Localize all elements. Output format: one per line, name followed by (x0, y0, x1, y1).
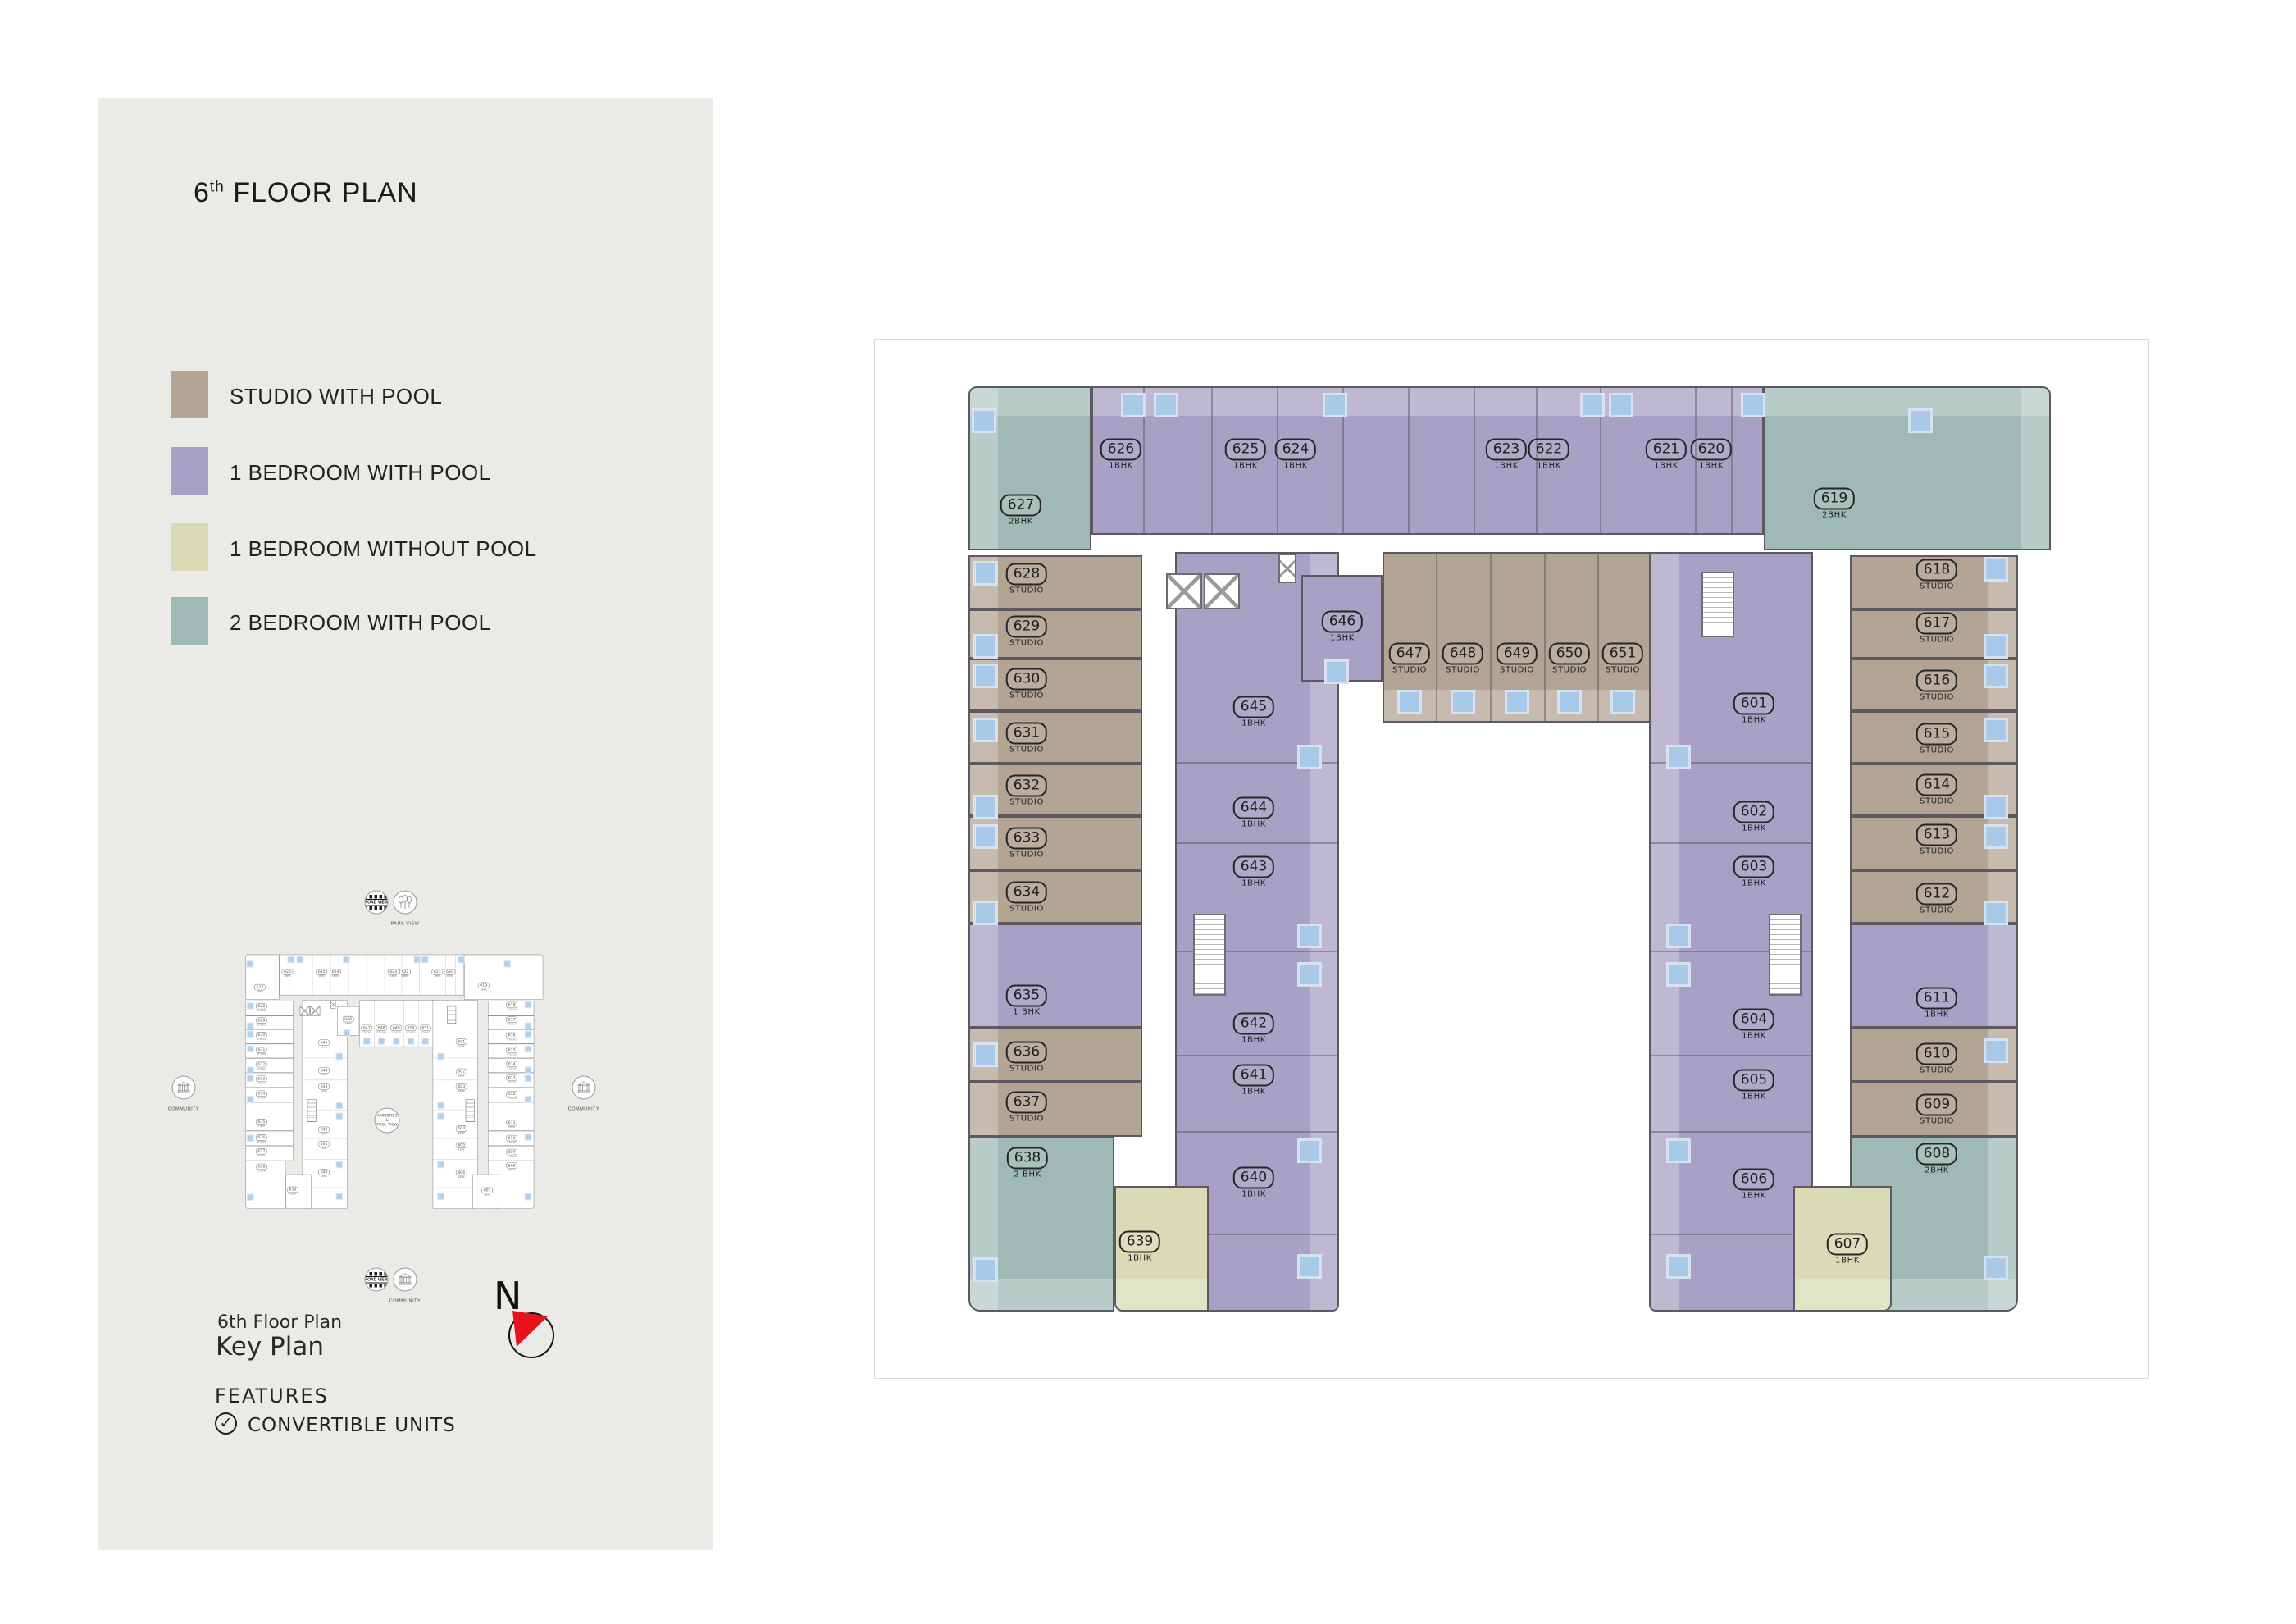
unit-number: 602 (1733, 801, 1774, 823)
unit-number: 615 (1916, 723, 1957, 746)
unit-label-648: 648STUDIO (376, 1025, 387, 1034)
pool-window-square (1984, 795, 2008, 819)
unit-label-628: 628STUDIO (256, 1003, 267, 1012)
unit-label-627: 6272BHK (254, 984, 266, 993)
unit-type: 2BHK (254, 991, 266, 993)
unit-type: STUDIO (256, 1082, 267, 1084)
pool-window-square (504, 960, 511, 967)
wall-separator (367, 955, 367, 996)
unit-number: 638 (1007, 1147, 1048, 1170)
pool-window-square (1297, 745, 1322, 769)
pool-window-square (297, 956, 303, 963)
unit-type: 1BHK (1486, 462, 1527, 471)
unit-label-644: 6441BHK (1233, 797, 1274, 829)
wall-separator (403, 1000, 404, 1047)
pool-window-square (336, 1113, 343, 1120)
pool-window-square (973, 824, 998, 849)
unit-number: 613 (1916, 824, 1957, 846)
balcony-strip (970, 1083, 998, 1135)
wall-separator (1175, 842, 1339, 844)
unit-label-618: 618STUDIO (506, 1002, 517, 1011)
unit-number: 626 (1100, 439, 1141, 461)
elevator (330, 1001, 335, 1009)
pool-window-square (1397, 690, 1422, 714)
unit-label-629: 629STUDIO (1006, 616, 1047, 648)
page-title: 6th FLOOR PLAN (194, 177, 418, 209)
unit-number: 647 (1389, 643, 1430, 665)
unit-type: 1BHK (1733, 824, 1774, 833)
unit-type: 1BHK (388, 975, 399, 978)
unit-label-608: 6082BHK (1916, 1143, 1957, 1175)
unit-type: 1BHK (318, 1133, 330, 1135)
pool-window-square (1666, 1138, 1691, 1163)
unit-type: STUDIO (376, 1031, 387, 1033)
unit-type: 1BHK (1225, 462, 1266, 471)
unit-type: STUDIO (506, 1053, 517, 1056)
unit-label-607: 6071BHK (481, 1188, 493, 1197)
unit-type: STUDIO (1006, 851, 1047, 860)
unit-label-607: 6071BHK (1827, 1234, 1868, 1266)
unit-637 (968, 1082, 1142, 1137)
pool-window-square (972, 408, 996, 433)
unit-number: 614 (1916, 774, 1957, 796)
pool-window-square (1984, 1038, 2008, 1063)
unit-type: 1BHK (316, 975, 327, 978)
stairs (307, 1100, 317, 1123)
community-icon (394, 1268, 417, 1292)
unit-label-632: 632STUDIO (1006, 775, 1047, 807)
unit-label-606: 6061BHK (456, 1170, 467, 1179)
unit-label-643: 6431BHK (1233, 856, 1274, 888)
unit-number: 615 (506, 1047, 517, 1053)
road-view-icon: ROAD VIEW (365, 1268, 389, 1292)
balcony-strip (1988, 1083, 2016, 1135)
unit-label-642: 6421BHK (1233, 1013, 1274, 1045)
unit-number: 601 (1733, 693, 1774, 715)
unit-type: 1BHK (1233, 1036, 1274, 1045)
unit-635 (245, 1102, 293, 1131)
unit-number: 646 (343, 1016, 354, 1022)
pool-window-square (1666, 924, 1691, 948)
unit-label-619: 6192BHK (478, 983, 490, 992)
unit-number: 617 (506, 1016, 517, 1022)
balcony-strip (1988, 1138, 2016, 1310)
unit-number: 637 (1006, 1092, 1047, 1114)
wall-separator (1436, 552, 1437, 723)
pool-window-square (1580, 393, 1605, 417)
pool-window-square (1666, 745, 1691, 769)
unit-number: 601 (456, 1038, 467, 1044)
unit-label-613: 613STUDIO (506, 1074, 517, 1083)
unit-label-612: 612STUDIO (1916, 883, 1957, 915)
unit-type: STUDIO (506, 1142, 517, 1144)
unit-type: STUDIO (1916, 797, 1957, 806)
unit-number: 651 (1602, 643, 1643, 665)
unit-number: 606 (456, 1170, 467, 1175)
unit-type: STUDIO (1006, 905, 1047, 914)
unit-type: 1BHK (456, 1176, 467, 1179)
unit-label-605: 6051BHK (456, 1143, 467, 1152)
wall-separator (433, 1080, 478, 1081)
unit-label-634: 634STUDIO (256, 1091, 267, 1100)
unit-type: 2BHK (1916, 1166, 1957, 1175)
unit-label-640: 6401BHK (318, 1169, 330, 1178)
unit-type: 1BHK (1646, 462, 1687, 471)
unit-number: 625 (1225, 439, 1266, 461)
unit-number: 608 (1916, 1143, 1957, 1166)
pool-window-square (973, 1257, 998, 1282)
wall-separator (1490, 552, 1492, 723)
unit-number: 604 (456, 1125, 467, 1131)
unit-label-604: 6041BHK (1733, 1009, 1774, 1041)
unit-number: 622 (1528, 439, 1569, 461)
pool-window-square (1323, 393, 1347, 417)
unit-number: 610 (506, 1135, 517, 1141)
legend-swatch-1br-nopool (171, 523, 208, 571)
unit-type: 1BHK (282, 975, 294, 978)
unit-type: 1BHK (318, 1046, 330, 1048)
unit-label-620: 6201BHK (1691, 439, 1732, 471)
unit-type: STUDIO (1916, 906, 1957, 915)
unit-type: 1BHK (506, 1126, 517, 1129)
pool-window-square (247, 1075, 253, 1082)
unit-type: 1BHK (343, 1023, 354, 1025)
unit-type: STUDIO (1442, 666, 1483, 675)
unit-type: 1BHK (318, 1090, 330, 1093)
unit-label-634: 634STUDIO (1006, 882, 1047, 914)
unit-type: STUDIO (1006, 586, 1047, 595)
unit-label-610: 610STUDIO (506, 1135, 517, 1144)
unit-number: 623 (1486, 439, 1527, 461)
pool-window-square (247, 1096, 253, 1102)
unit-type: 1BHK (456, 1090, 467, 1093)
unit-label-633: 633STUDIO (1006, 828, 1047, 860)
pool-window-square (1505, 690, 1529, 714)
unit-type: 1BHK (456, 1148, 467, 1151)
unit-label-626: 6261BHK (282, 969, 294, 978)
wall-separator (1175, 1131, 1339, 1133)
unit-type: 1BHK (1275, 462, 1316, 471)
unit-type: STUDIO (1916, 746, 1957, 755)
unit-number: 648 (1442, 643, 1483, 665)
pool-window-square (1297, 962, 1322, 987)
pool-window-square (421, 956, 428, 963)
key-plan-miniature: 6011BHK6021BHK6031BHK6041BHK6051BHK6061B… (220, 942, 571, 1228)
unit-number: 618 (506, 1002, 517, 1008)
unit-number: 647 (361, 1025, 372, 1031)
unit-label-639: 6391BHK (287, 1187, 298, 1196)
unit-label-609: 609STUDIO (1916, 1094, 1957, 1126)
unit-number: 616 (1916, 670, 1957, 692)
pool-window-square (525, 1046, 531, 1052)
pool-window-square (1984, 901, 2008, 925)
floor-plan-drawing: 6011BHK6021BHK6031BHK6041BHK6051BHK6061B… (220, 942, 570, 1227)
unit-label-649: 649STUDIO (1496, 643, 1537, 675)
unit-type: 1BHK (456, 1045, 467, 1047)
unit-label-640: 6401BHK (1233, 1167, 1274, 1199)
unit-type: 1BHK (1100, 462, 1141, 471)
unit-number: 643 (1233, 856, 1274, 878)
pool-window-square (393, 1038, 399, 1044)
unit-label-628: 628STUDIO (1006, 563, 1047, 595)
unit-number: 635 (1006, 985, 1047, 1007)
pool-window-square (336, 1102, 343, 1109)
unit-type: STUDIO (1916, 847, 1957, 856)
balcony-strip (1795, 1279, 1890, 1310)
unit-label-621: 6211BHK (431, 969, 443, 978)
unit-type: 2BHK (478, 988, 490, 991)
unit-type: STUDIO (1006, 691, 1047, 700)
unit-number: 624 (330, 969, 341, 974)
unit-637 (245, 1146, 293, 1161)
pool-window-square (973, 561, 998, 586)
amenities-pool-view-label: AMENITIES & POOL VIEW (375, 1108, 400, 1134)
unit-type: STUDIO (256, 1053, 267, 1056)
unit-type: STUDIO (506, 1081, 517, 1083)
unit-label-625: 6251BHK (1225, 439, 1266, 471)
pool-window-square (1297, 924, 1322, 948)
unit-type: STUDIO (506, 1097, 517, 1100)
unit-label-638: 6382 BHK (1007, 1147, 1048, 1179)
unit-label-623: 6231BHK (1486, 439, 1527, 471)
wall-separator (303, 1138, 348, 1139)
legend-label: 1 BEDROOM WITH POOL (230, 460, 491, 486)
unit-number: 602 (456, 1069, 467, 1074)
wall-separator (433, 1159, 478, 1160)
unit-number: 629 (1006, 616, 1047, 638)
unit-type: 1BHK (399, 975, 411, 978)
unit-number: 633 (1006, 828, 1047, 850)
unit-label-646: 6461BHK (343, 1016, 354, 1025)
unit-label-637: 637STUDIO (256, 1148, 267, 1157)
pool-window-square (422, 1038, 429, 1044)
elevator (300, 1006, 310, 1015)
unit-type: 1BHK (1733, 1093, 1774, 1102)
unit-number: 636 (256, 1134, 267, 1140)
unit-type: 1BHK (330, 975, 341, 978)
unit-label-617: 617STUDIO (506, 1016, 517, 1025)
unit-number: 613 (506, 1074, 517, 1080)
unit-number: 640 (1233, 1167, 1274, 1189)
pool-window-square (1908, 408, 1933, 433)
pool-window-square (1610, 690, 1635, 714)
unit-number: 611 (506, 1120, 517, 1125)
unit-type: STUDIO (420, 1031, 431, 1033)
unit-label-638: 6382 BHK (256, 1164, 267, 1173)
unit-number: 618 (1916, 559, 1957, 582)
unit-number: 630 (1006, 668, 1047, 691)
unit-number: 638 (256, 1164, 267, 1170)
balcony-strip (1765, 388, 2049, 416)
unit-type: STUDIO (1916, 1117, 1957, 1126)
balcony-strip (1093, 388, 1762, 416)
unit-619 (1764, 386, 2051, 550)
unit-number: 606 (1733, 1169, 1774, 1191)
unit-type: STUDIO (1006, 746, 1047, 755)
unit-label-643: 6431BHK (318, 1083, 330, 1093)
unit-label-619: 6192BHK (1814, 488, 1855, 520)
unit-number: 650 (1549, 643, 1590, 665)
park-view-icon (394, 891, 417, 915)
unit-type: 1BHK (318, 1147, 330, 1150)
park-view-caption: PARK VIEW (391, 921, 420, 926)
unit-label-630: 630STUDIO (1006, 668, 1047, 700)
unit-type: 1BHK (1119, 1254, 1160, 1263)
pool-window-square (247, 1194, 253, 1201)
unit-number: 637 (256, 1148, 267, 1154)
unit-type: 1BHK (1733, 1032, 1774, 1041)
unit-label-633: 633STUDIO (256, 1075, 267, 1084)
pool-window-square (525, 1023, 531, 1029)
unit-label-627: 6272BHK (1000, 495, 1041, 527)
unit-number: 609 (1916, 1094, 1957, 1116)
pool-window-square (437, 1193, 444, 1200)
wall-separator (1649, 1234, 1813, 1235)
unit-type: STUDIO (405, 1031, 417, 1033)
unit-635 (968, 924, 1142, 1028)
unit-type: STUDIO (1496, 666, 1537, 675)
pool-window-square (525, 1075, 531, 1082)
unit-type: STUDIO (506, 1038, 517, 1041)
legend-swatch-2br-pool (171, 597, 208, 645)
pool-window-square (437, 1102, 444, 1109)
unit-label-603: 6031BHK (1733, 856, 1774, 888)
stairs (1193, 914, 1226, 996)
unit-number: 642 (1233, 1013, 1274, 1035)
wall-separator (418, 1000, 419, 1047)
unit-number: 644 (318, 1067, 330, 1073)
unit-type: STUDIO (506, 1067, 517, 1070)
pool-window-square (525, 1067, 531, 1074)
pool-window-square (973, 634, 998, 659)
unit-number: 648 (376, 1025, 387, 1031)
unit-label-631: 631STUDIO (256, 1047, 267, 1056)
elevator (1166, 573, 1202, 609)
legend-label: 2 BEDROOM WITH POOL (230, 610, 491, 636)
unit-label-614: 614STUDIO (1916, 774, 1957, 806)
unit-number: 624 (1275, 439, 1316, 461)
unit-type: STUDIO (506, 1008, 517, 1010)
unit-type: 1 BHK (256, 1125, 267, 1128)
pool-window-square (437, 1113, 444, 1120)
unit-label-618: 618STUDIO (1916, 559, 1957, 591)
pool-window-square (344, 1029, 350, 1036)
unit-number: 619 (478, 983, 490, 988)
unit-number: 642 (318, 1127, 330, 1133)
unit-type: 1BHK (1233, 879, 1274, 888)
unit-label-626: 6261BHK (1100, 439, 1141, 471)
unit-number: 605 (1733, 1070, 1774, 1092)
unit-type: STUDIO (1916, 582, 1957, 591)
unit-label-639: 6391BHK (1119, 1231, 1160, 1263)
pool-window-square (1984, 824, 2008, 849)
pool-window-square (1984, 1256, 2008, 1280)
check-icon: ✓ (215, 1412, 237, 1435)
pool-window-square (973, 795, 998, 819)
unit-number: 632 (256, 1061, 267, 1067)
unit-number: 621 (431, 969, 443, 974)
unit-label-637: 637STUDIO (1006, 1092, 1047, 1124)
unit-label-623: 6231BHK (388, 969, 399, 978)
unit-label-635: 6351 BHK (1006, 985, 1047, 1017)
unit-number: 612 (506, 1091, 517, 1097)
unit-type: 1BHK (1233, 719, 1274, 728)
wall-separator (374, 1000, 375, 1047)
unit-type: 1BHK (444, 975, 456, 978)
elevator (310, 1006, 320, 1015)
unit-type: STUDIO (256, 1038, 267, 1041)
unit-type: 2 BHK (256, 1170, 267, 1172)
unit-type: STUDIO (1006, 798, 1047, 807)
unit-number: 641 (1233, 1065, 1274, 1087)
unit-type: 2BHK (1814, 511, 1855, 520)
unit-type: 1BHK (1733, 879, 1774, 888)
pool-window-square (525, 1193, 531, 1200)
pool-window-square (1451, 690, 1475, 714)
unit-type: STUDIO (1916, 693, 1957, 702)
unit-type: 1BHK (431, 975, 443, 978)
unit-label-605: 6051BHK (1733, 1070, 1774, 1102)
unit-number: 633 (256, 1075, 267, 1081)
pool-window-square (973, 718, 998, 742)
unit-number: 619 (1814, 488, 1855, 510)
elevator (1278, 554, 1296, 583)
unit-number: 610 (1916, 1043, 1957, 1065)
unit-label-601: 6011BHK (456, 1038, 467, 1047)
unit-label-642: 6421BHK (318, 1127, 330, 1136)
unit-number: 649 (1496, 643, 1537, 665)
community-caption: COMMUNITY (389, 1298, 421, 1303)
unit-label-621: 6211BHK (1646, 439, 1687, 471)
unit-type: STUDIO (1006, 1115, 1047, 1124)
unit-type: 1BHK (1528, 462, 1569, 471)
pool-window-square (247, 1023, 253, 1029)
pool-window-square (458, 956, 464, 963)
unit-number: 629 (256, 1018, 267, 1024)
pool-window-square (525, 1031, 531, 1038)
unit-label-622: 6221BHK (1528, 439, 1569, 471)
unit-label-624: 6241BHK (1275, 439, 1316, 471)
pool-window-square (525, 1096, 531, 1102)
pool-window-square (1154, 393, 1178, 417)
unit-number: 603 (456, 1083, 467, 1089)
unit-type: STUDIO (256, 1155, 267, 1157)
legend-label: STUDIO WITH POOL (230, 384, 442, 409)
unit-type: STUDIO (1389, 666, 1430, 675)
unit-label-649: 649STUDIO (390, 1025, 402, 1034)
unit-label-622: 6221BHK (399, 969, 411, 978)
unit-label-615: 615STUDIO (506, 1047, 517, 1056)
unit-label-647: 647STUDIO (361, 1025, 372, 1034)
unit-number: 607 (481, 1188, 493, 1193)
balcony-strip (970, 1138, 998, 1310)
pool-window-square (1121, 393, 1146, 417)
pool-window-square (1324, 659, 1349, 684)
unit-type: 2 BHK (1007, 1170, 1048, 1179)
unit-label-625: 6251BHK (316, 969, 327, 978)
unit-label-616: 616STUDIO (506, 1033, 517, 1042)
unit-type: STUDIO (1006, 1065, 1047, 1074)
unit-number: 603 (1733, 856, 1774, 878)
unit-label-604: 6041BHK (456, 1125, 467, 1134)
unit-type: STUDIO (256, 1024, 267, 1026)
community-icon (572, 1076, 596, 1100)
features-heading: FEATURES (215, 1385, 329, 1407)
unit-type: STUDIO (506, 1156, 517, 1158)
unit-number: 651 (420, 1025, 431, 1031)
wall-separator (312, 955, 313, 996)
unit-number: 607 (1827, 1234, 1868, 1256)
